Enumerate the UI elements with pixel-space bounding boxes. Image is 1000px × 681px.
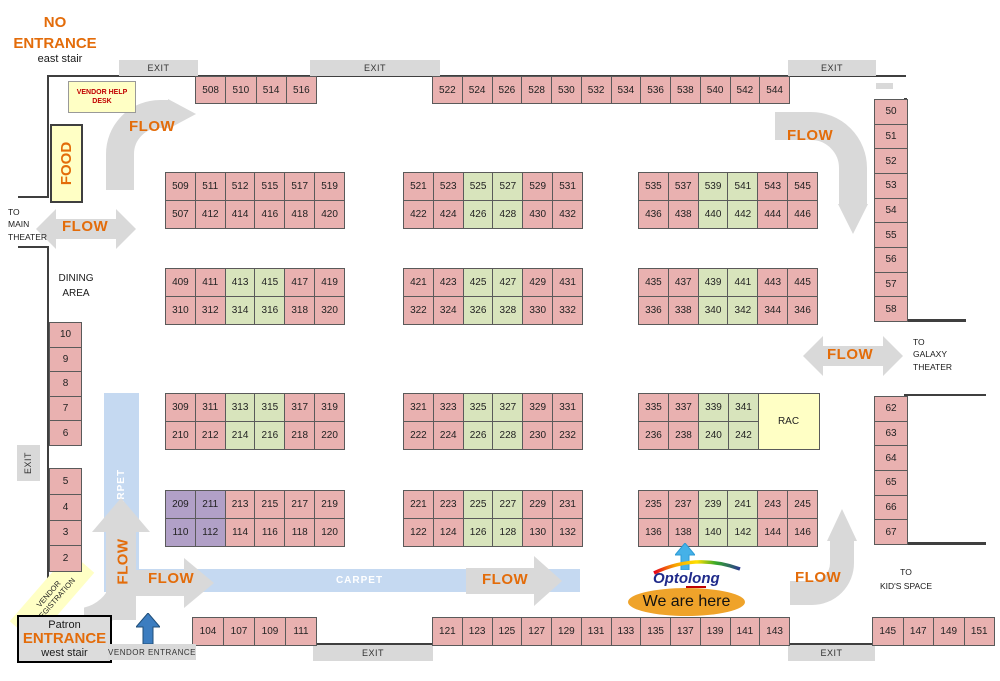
booth-138: 138 (669, 519, 698, 546)
booth-425: 425 (464, 269, 493, 296)
booth-145: 145 (873, 618, 903, 645)
booth-141: 141 (731, 618, 760, 645)
booth-51: 51 (875, 125, 907, 149)
exit-bottom-1: EXIT (313, 645, 433, 661)
booth-220: 220 (315, 422, 344, 449)
booth-437: 437 (669, 269, 698, 296)
booth-542: 542 (731, 77, 760, 103)
booth-312: 312 (196, 297, 225, 324)
booth-218: 218 (285, 422, 314, 449)
booth-237: 237 (669, 491, 698, 518)
booth-311: 311 (196, 394, 225, 421)
booth-55: 55 (875, 223, 907, 247)
booth-56: 56 (875, 248, 907, 272)
booth-539: 539 (699, 173, 728, 200)
booth-422: 422 (404, 201, 433, 228)
optolong-logo: Optolong (648, 560, 744, 590)
booth-531: 531 (553, 173, 582, 200)
booth-144: 144 (758, 519, 787, 546)
vendor-entrance: VENDOR ENTRANCE (108, 644, 196, 660)
exit-top-1: EXIT (119, 60, 198, 76)
booth-526: 526 (493, 77, 522, 103)
booth-118: 118 (285, 519, 314, 546)
booth-226: 226 (464, 422, 493, 449)
booth-67: 67 (875, 520, 907, 544)
booth-236: 236 (639, 422, 668, 449)
booth-427: 427 (493, 269, 522, 296)
booth-64: 64 (875, 446, 907, 470)
booth-310: 310 (166, 297, 195, 324)
booth-323: 323 (434, 394, 463, 421)
booth-57: 57 (875, 273, 907, 297)
flow-label-bottom-right: FLOW (795, 569, 841, 586)
booth-524: 524 (463, 77, 492, 103)
booth-block-top-mid: 522524526528530532534536538540542544 (432, 76, 790, 104)
booth-339: 339 (699, 394, 728, 421)
booth-146: 146 (788, 519, 817, 546)
booth-column-left-upper: 109876 (49, 322, 82, 446)
vendor-entrance-arrow-icon (136, 613, 160, 644)
booth-328: 328 (493, 297, 522, 324)
booth-241: 241 (728, 491, 757, 518)
booth-538: 538 (671, 77, 700, 103)
booth-50: 50 (875, 100, 907, 124)
booth-423: 423 (434, 269, 463, 296)
booth-215: 215 (255, 491, 284, 518)
booth-107: 107 (224, 618, 254, 645)
booth-block-500s-mid: 521523525527529531422424426428430432 (403, 172, 583, 229)
booth-9: 9 (50, 348, 81, 372)
booth-441: 441 (728, 269, 757, 296)
booth-325: 325 (464, 394, 493, 421)
booth-block-200s-left: 209211213215217219110112114116118120 (165, 490, 345, 547)
booth-block-400s-left: 409411413415417419310312314316318320 (165, 268, 345, 325)
booth-522: 522 (433, 77, 462, 103)
booth-142: 142 (728, 519, 757, 546)
booth-212: 212 (196, 422, 225, 449)
booth-530: 530 (552, 77, 581, 103)
booth-429: 429 (523, 269, 552, 296)
booth-126: 126 (464, 519, 493, 546)
booth-309: 309 (166, 394, 195, 421)
booth-120: 120 (315, 519, 344, 546)
east-stair-label: east stair (25, 53, 95, 65)
patron-entrance-line3: west stair (41, 647, 87, 659)
booth-column-60s: 626364656667 (874, 396, 908, 545)
booth-block-200s-mid: 221223225227229231122124126128130132 (403, 490, 583, 547)
flow-label-bottom-center: FLOW (482, 571, 528, 588)
booth-515: 515 (255, 173, 284, 200)
booth-537: 537 (669, 173, 698, 200)
booth-342: 342 (728, 297, 757, 324)
patron-entrance-line2: ENTRANCE (23, 631, 106, 648)
booth-block-200s-right: 235237239241243245136138140142144146 (638, 490, 818, 547)
booth-424: 424 (434, 201, 463, 228)
booth-136: 136 (639, 519, 668, 546)
booth-151: 151 (965, 618, 995, 645)
booth-3: 3 (50, 521, 81, 546)
booth-315: 315 (255, 394, 284, 421)
exit-left: EXIT (17, 445, 40, 481)
booth-54: 54 (875, 199, 907, 223)
booth-139: 139 (701, 618, 730, 645)
booth-428: 428 (493, 201, 522, 228)
booth-125: 125 (493, 618, 522, 645)
booth-519: 519 (315, 173, 344, 200)
wall-left-upper (47, 75, 49, 197)
booth-110: 110 (166, 519, 195, 546)
booth-block-bottom-left: 104107109111 (192, 617, 317, 646)
booth-340: 340 (699, 297, 728, 324)
booth-336: 336 (639, 297, 668, 324)
booth-block-bottom-mid: 121123125127129131133135137139141143 (432, 617, 790, 646)
booth-430: 430 (523, 201, 552, 228)
booth-121: 121 (433, 618, 462, 645)
booth-block-400s-right: 435437439441443445336338340342344346 (638, 268, 818, 325)
booth-446: 446 (788, 201, 817, 228)
booth-242: 242 (729, 422, 758, 449)
booth-511: 511 (196, 173, 225, 200)
booth-column-left-lower: 5432 (49, 468, 82, 572)
booth-block-300s-mid: 321323325327329331222224226228230232 (403, 393, 583, 450)
wall-right-jut (904, 319, 966, 322)
booth-128: 128 (493, 519, 522, 546)
booth-104: 104 (193, 618, 223, 645)
to-galaxy-theater-label: TO GALAXY THEATER (913, 336, 952, 373)
to-kids-space-label: TO KID'S SPACE (860, 566, 952, 593)
booth-331: 331 (553, 394, 582, 421)
rac-booth: RAC (757, 393, 820, 450)
booth-block-300s-left: 309311313315317319210212214216218220 (165, 393, 345, 450)
booth-528: 528 (522, 77, 551, 103)
exit-bottom-2: EXIT (788, 645, 875, 661)
booth-329: 329 (523, 394, 552, 421)
booth-316: 316 (255, 297, 284, 324)
booth-313: 313 (226, 394, 255, 421)
booth-512: 512 (226, 173, 255, 200)
booth-235: 235 (639, 491, 668, 518)
flow-label-left: FLOW (62, 218, 108, 235)
booth-514: 514 (257, 77, 286, 103)
booth-426: 426 (464, 201, 493, 228)
booth-507: 507 (166, 201, 195, 228)
booth-322: 322 (404, 297, 433, 324)
exit-top-2: EXIT (310, 60, 440, 76)
booth-320: 320 (315, 297, 344, 324)
booth-439: 439 (699, 269, 728, 296)
booth-112: 112 (196, 519, 225, 546)
booth-516: 516 (287, 77, 316, 103)
flow-label-bottom-left: FLOW (148, 570, 194, 587)
booth-221: 221 (404, 491, 433, 518)
door-marker (876, 83, 893, 89)
patron-entrance-line1: Patron (48, 619, 80, 631)
wall-jog-upper (18, 196, 49, 198)
booth-231: 231 (553, 491, 582, 518)
booth-540: 540 (701, 77, 730, 103)
we-are-here-badge: We are here (628, 588, 745, 616)
booth-4: 4 (50, 495, 81, 520)
booth-443: 443 (758, 269, 787, 296)
booth-432: 432 (553, 201, 582, 228)
booth-435: 435 (639, 269, 668, 296)
booth-326: 326 (464, 297, 493, 324)
booth-block-top-left: 508510514516 (195, 76, 317, 104)
booth-413: 413 (226, 269, 255, 296)
no-entrance-label: NO ENTRANCE (12, 12, 98, 54)
booth-341: 341 (729, 394, 758, 421)
wall-galaxy-top (904, 394, 986, 396)
booth-block-300s-right: 335337339341236238240242 (638, 393, 759, 450)
exit-top-3: EXIT (788, 60, 876, 76)
flow-label-top-left: FLOW (129, 118, 175, 135)
booth-545: 545 (788, 173, 817, 200)
booth-109: 109 (255, 618, 285, 645)
booth-324: 324 (434, 297, 463, 324)
flow-label-right: FLOW (827, 346, 873, 363)
booth-509: 509 (166, 173, 195, 200)
flow-label-vertical: FLOW (115, 534, 132, 590)
booth-444: 444 (758, 201, 787, 228)
booth-65: 65 (875, 471, 907, 495)
booth-417: 417 (285, 269, 314, 296)
booth-149: 149 (934, 618, 964, 645)
booth-53: 53 (875, 174, 907, 198)
booth-335: 335 (639, 394, 668, 421)
booth-243: 243 (758, 491, 787, 518)
booth-440: 440 (699, 201, 728, 228)
booth-436: 436 (639, 201, 668, 228)
booth-block-500s-left: 509511512515517519507412414416418420 (165, 172, 345, 229)
booth-232: 232 (553, 422, 582, 449)
booth-124: 124 (434, 519, 463, 546)
booth-414: 414 (226, 201, 255, 228)
booth-129: 129 (552, 618, 581, 645)
booth-409: 409 (166, 269, 195, 296)
booth-412: 412 (196, 201, 225, 228)
flow-label-top-right: FLOW (787, 127, 833, 144)
booth-227: 227 (493, 491, 522, 518)
booth-229: 229 (523, 491, 552, 518)
booth-122: 122 (404, 519, 433, 546)
booth-508: 508 (196, 77, 225, 103)
booth-210: 210 (166, 422, 195, 449)
booth-147: 147 (904, 618, 934, 645)
booth-544: 544 (760, 77, 789, 103)
booth-135: 135 (641, 618, 670, 645)
optolong-logo-text: Optolong (653, 570, 720, 587)
booth-240: 240 (699, 422, 728, 449)
booth-58: 58 (875, 297, 907, 321)
booth-517: 517 (285, 173, 314, 200)
booth-217: 217 (285, 491, 314, 518)
booth-415: 415 (255, 269, 284, 296)
booth-319: 319 (315, 394, 344, 421)
booth-318: 318 (285, 297, 314, 324)
booth-327: 327 (493, 394, 522, 421)
booth-224: 224 (434, 422, 463, 449)
booth-442: 442 (728, 201, 757, 228)
booth-337: 337 (669, 394, 698, 421)
booth-420: 420 (315, 201, 344, 228)
booth-130: 130 (523, 519, 552, 546)
booth-411: 411 (196, 269, 225, 296)
booth-344: 344 (758, 297, 787, 324)
booth-block-bottom-right: 145147149151 (872, 617, 995, 646)
patron-entrance: Patron ENTRANCE west stair (17, 615, 112, 663)
booth-543: 543 (758, 173, 787, 200)
booth-228: 228 (493, 422, 522, 449)
booth-209: 209 (166, 491, 195, 518)
booth-62: 62 (875, 397, 907, 421)
booth-block-500s-right: 535537539541543545436438440442444446 (638, 172, 818, 229)
booth-211: 211 (196, 491, 225, 518)
booth-219: 219 (315, 491, 344, 518)
booth-66: 66 (875, 496, 907, 520)
booth-225: 225 (464, 491, 493, 518)
booth-525: 525 (464, 173, 493, 200)
booth-140: 140 (699, 519, 728, 546)
booth-321: 321 (404, 394, 433, 421)
booth-445: 445 (788, 269, 817, 296)
booth-438: 438 (669, 201, 698, 228)
booth-317: 317 (285, 394, 314, 421)
food-area: FOOD (50, 124, 83, 203)
booth-510: 510 (226, 77, 255, 103)
booth-137: 137 (671, 618, 700, 645)
booth-536: 536 (641, 77, 670, 103)
booth-534: 534 (612, 77, 641, 103)
booth-431: 431 (553, 269, 582, 296)
booth-214: 214 (226, 422, 255, 449)
booth-63: 63 (875, 422, 907, 446)
food-label: FOOD (58, 142, 75, 185)
we-are-here-text: We are here (643, 593, 731, 611)
booth-230: 230 (523, 422, 552, 449)
booth-314: 314 (226, 297, 255, 324)
booth-535: 535 (639, 173, 668, 200)
booth-541: 541 (728, 173, 757, 200)
booth-222: 222 (404, 422, 433, 449)
booth-111: 111 (286, 618, 316, 645)
booth-521: 521 (404, 173, 433, 200)
booth-338: 338 (669, 297, 698, 324)
booth-123: 123 (463, 618, 492, 645)
booth-7: 7 (50, 397, 81, 421)
booth-8: 8 (50, 372, 81, 396)
booth-529: 529 (523, 173, 552, 200)
booth-523: 523 (434, 173, 463, 200)
booth-116: 116 (255, 519, 284, 546)
booth-419: 419 (315, 269, 344, 296)
booth-10: 10 (50, 323, 81, 347)
booth-131: 131 (582, 618, 611, 645)
booth-143: 143 (760, 618, 789, 645)
booth-2: 2 (50, 546, 81, 571)
booth-114: 114 (226, 519, 255, 546)
dining-area-label: DINING AREA (50, 271, 102, 301)
booth-block-400s-mid: 421423425427429431322324326328330332 (403, 268, 583, 325)
booth-216: 216 (255, 422, 284, 449)
booth-213: 213 (226, 491, 255, 518)
booth-133: 133 (612, 618, 641, 645)
booth-127: 127 (522, 618, 551, 645)
booth-238: 238 (669, 422, 698, 449)
booth-416: 416 (255, 201, 284, 228)
booth-346: 346 (788, 297, 817, 324)
booth-245: 245 (788, 491, 817, 518)
booth-532: 532 (582, 77, 611, 103)
booth-330: 330 (523, 297, 552, 324)
booth-column-50s: 505152535455565758 (874, 99, 908, 322)
wall-galaxy-bottom (904, 542, 986, 545)
vendor-help-desk: VENDOR HELP DESK (68, 81, 136, 113)
booth-223: 223 (434, 491, 463, 518)
to-main-theater-label: TO MAIN THEATER (8, 206, 47, 243)
booth-418: 418 (285, 201, 314, 228)
booth-6: 6 (50, 421, 81, 445)
booth-132: 132 (553, 519, 582, 546)
booth-527: 527 (493, 173, 522, 200)
vendor-hall-floor-plan: CARPET CARPET FLOW FLOW FLOW FLOW FLOW F… (0, 0, 1000, 681)
booth-332: 332 (553, 297, 582, 324)
carpet-label-horizontal: CARPET (336, 575, 383, 586)
booth-421: 421 (404, 269, 433, 296)
booth-5: 5 (50, 469, 81, 494)
booth-239: 239 (699, 491, 728, 518)
booth-52: 52 (875, 149, 907, 173)
